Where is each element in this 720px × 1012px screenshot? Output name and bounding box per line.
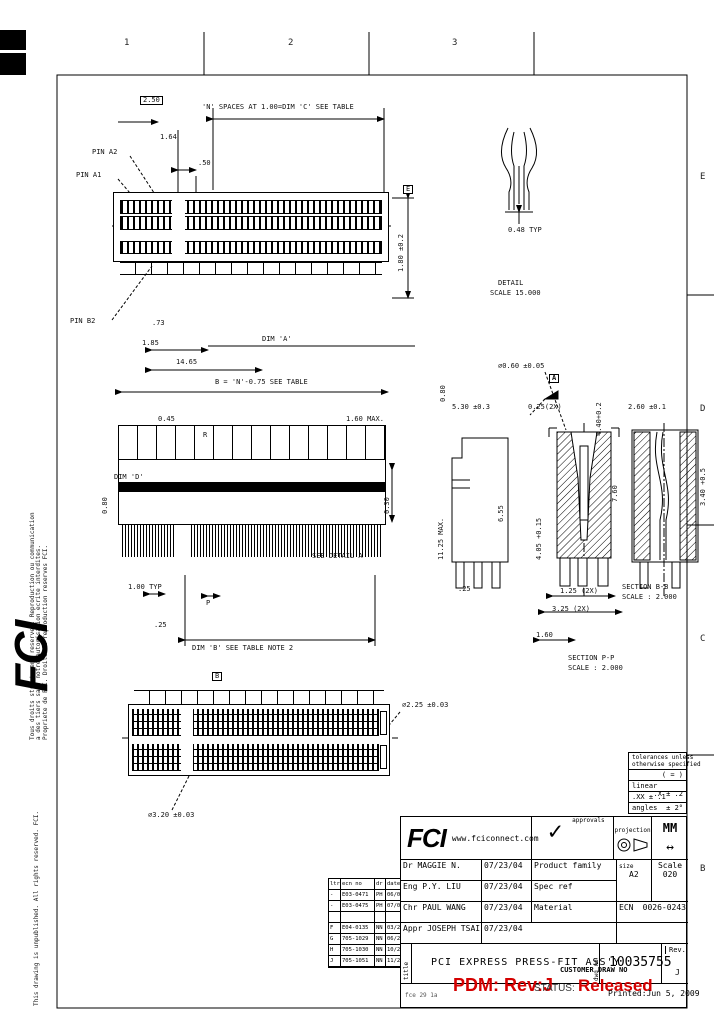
detail-title: DETAIL bbox=[498, 280, 523, 287]
dim-label: SEE DETAIL A bbox=[312, 553, 363, 560]
tolerance-text: .XX ± .1 bbox=[632, 793, 666, 801]
dim-label: 7.60 bbox=[612, 485, 619, 502]
dim-label: 4.40+0.2 bbox=[596, 402, 603, 436]
rev-cell: PH bbox=[375, 890, 386, 901]
rev-cell: J bbox=[329, 956, 341, 967]
bottom-view bbox=[128, 704, 390, 776]
rev-cell: NN bbox=[375, 956, 386, 967]
rev-cell bbox=[341, 912, 375, 923]
date-text: 07/23/04 bbox=[484, 903, 523, 912]
rev-value: J bbox=[675, 968, 680, 977]
dim-label: 4.05 +0.15 bbox=[536, 518, 543, 560]
datum-flag: E bbox=[403, 185, 413, 194]
dim-label: 3.40 +0.5 bbox=[700, 468, 707, 506]
rev-cell: NN bbox=[375, 934, 386, 945]
divider bbox=[661, 944, 662, 984]
rev-cell: - bbox=[329, 890, 341, 901]
field-cell: Product family bbox=[531, 859, 616, 880]
rev-cell: E03-0475 bbox=[341, 901, 375, 912]
printed-date: Printed:Jun 5, 2009 bbox=[608, 989, 700, 998]
field-text: Material bbox=[534, 903, 573, 912]
key-gap bbox=[181, 707, 193, 773]
sig-name: PAUL WANG bbox=[422, 903, 465, 912]
dim-label: ⌀3.20 ±0.03 bbox=[148, 812, 194, 819]
date-text: 07/23/04 bbox=[484, 861, 523, 870]
rev-header: ltr bbox=[329, 879, 341, 890]
sig-role: Chr bbox=[403, 903, 417, 912]
end-block bbox=[380, 711, 387, 735]
copyright-line: This drawing is unpublished. All rights … bbox=[33, 811, 40, 1006]
rev-cell: F bbox=[329, 923, 341, 934]
field-cell: Material bbox=[531, 901, 616, 922]
end-block bbox=[380, 745, 387, 769]
pin-callout: PIN A2 bbox=[92, 149, 117, 156]
pin-callout: PIN B2 bbox=[70, 318, 95, 325]
zone-letter: B bbox=[700, 864, 705, 874]
date-text: 07/23/04 bbox=[484, 924, 523, 933]
drawing-sheet: Tous droits strictement reserves. Reprod… bbox=[0, 0, 720, 1012]
dim-label: 2.50 bbox=[140, 96, 163, 105]
dim-label: .73 bbox=[152, 320, 165, 327]
tolerance-text: ( = ) bbox=[662, 771, 683, 779]
dim-label: R bbox=[203, 432, 207, 439]
units-cell: MM ↔ bbox=[651, 817, 688, 859]
sig-role-name: Chr PAUL WANG bbox=[401, 901, 481, 922]
section-title: SECTION P-P bbox=[568, 655, 614, 662]
dim-label: .25 bbox=[458, 586, 471, 593]
detail-dim: 0.48 TYP bbox=[508, 227, 542, 234]
dim-label: 6.55 bbox=[498, 505, 505, 522]
key-gap bbox=[176, 525, 189, 559]
dim-label: 1.60 MAX. bbox=[346, 416, 384, 423]
sig-date: 07/23/04 bbox=[481, 901, 531, 922]
dim-label: 0.80 bbox=[440, 385, 447, 402]
rev-cell bbox=[375, 912, 386, 923]
dim-label: B = 'N'-0.75 SEE TABLE bbox=[215, 379, 308, 386]
pin-field bbox=[132, 744, 379, 771]
form-note: fce 29 1a bbox=[405, 992, 438, 999]
dim-label: 0.80 bbox=[102, 497, 109, 514]
status-label: STATUS: bbox=[534, 983, 575, 994]
sig-date: 07/23/04 bbox=[481, 922, 616, 943]
dim-label: .50 bbox=[198, 160, 211, 167]
fci-logo: FCI bbox=[407, 823, 446, 854]
dim-label: .25 bbox=[154, 622, 167, 629]
dim-label: 1.80 ±0.2 bbox=[398, 234, 405, 272]
pin-callout: PIN A1 bbox=[76, 172, 101, 179]
section-title: SECTION B-B bbox=[622, 584, 668, 591]
projection-label: projection bbox=[614, 827, 650, 834]
customer-draw-no: CUSTOMER DRAW NO bbox=[560, 966, 627, 974]
rev-cell: H bbox=[329, 945, 341, 956]
date-text: 07/23/04 bbox=[484, 882, 523, 891]
tolerance-text: linear bbox=[632, 782, 657, 790]
field-text: Spec ref bbox=[534, 882, 573, 891]
field-text: Product family bbox=[534, 861, 601, 870]
sig-role: Dr bbox=[403, 861, 413, 870]
rev-cell: - bbox=[329, 901, 341, 912]
sig-name: P.Y. LIU bbox=[422, 882, 461, 891]
approvals-cell: ✓ approvals bbox=[531, 817, 613, 859]
top-view bbox=[113, 192, 389, 262]
dim-label: 0.45 bbox=[158, 416, 175, 423]
divider bbox=[411, 944, 412, 984]
dim-label: DIM 'A' bbox=[262, 336, 292, 343]
pin-row bbox=[120, 241, 382, 254]
dim-label: ⌀2.25 ±0.03 bbox=[402, 702, 448, 709]
sig-date: 07/23/04 bbox=[481, 880, 531, 901]
dim-label: 14.65 bbox=[176, 359, 197, 366]
dim-label: 3.25 (2X) bbox=[552, 606, 590, 613]
projection-cell: projection bbox=[613, 817, 651, 859]
website-text: www.fciconnect.com bbox=[452, 834, 539, 843]
zone-number: 3 bbox=[452, 38, 457, 48]
pin-row bbox=[120, 216, 382, 230]
tolerance-text: angles bbox=[632, 804, 657, 812]
ecn-cell: ECN 0026-0243 bbox=[616, 901, 688, 922]
title-label: title bbox=[403, 962, 410, 980]
dim-label: 'N' SPACES AT 1.00=DIM 'C' SEE TABLE bbox=[202, 104, 354, 111]
sig-role: Appr bbox=[403, 924, 422, 933]
housing-lower bbox=[118, 491, 386, 525]
dim-label: ⌀0.60 ±0.05 bbox=[498, 363, 544, 370]
rev-cell: 705-1030 bbox=[341, 945, 375, 956]
dim-label: 11.25 MAX. bbox=[438, 518, 445, 560]
margin-copyright-en: This drawing is unpublished. All rights … bbox=[34, 876, 40, 1006]
dim-label: P bbox=[206, 600, 210, 607]
tolerance-row: angles ± 2° bbox=[629, 803, 686, 813]
castellations bbox=[118, 425, 386, 459]
rev-header: dr bbox=[375, 879, 386, 890]
tolerance-row: ( = ) bbox=[629, 770, 686, 781]
rev-cell: PH bbox=[375, 901, 386, 912]
arrow-icon: ↔ bbox=[666, 840, 674, 855]
tolerance-text: ± 2° bbox=[666, 804, 683, 812]
zone-letter: E bbox=[700, 172, 705, 182]
fci-margin-logo: FCI bbox=[4, 621, 58, 692]
sig-name: JOSEPH TSAI bbox=[427, 924, 480, 933]
front-view bbox=[118, 425, 386, 573]
zone-number: 1 bbox=[124, 38, 129, 48]
section-scale: SCALE : 2.000 bbox=[568, 665, 623, 672]
dim-label: 2.60 ±0.1 bbox=[628, 404, 666, 411]
dim-label: 5.30 ±0.3 bbox=[452, 404, 490, 411]
tolerance-text: tolerances unless bbox=[632, 754, 693, 761]
scale-label: Scale bbox=[658, 861, 682, 870]
print-mark bbox=[0, 53, 26, 75]
ecn-label: ECN bbox=[619, 903, 633, 912]
scale-cell: Scale 020 bbox=[651, 859, 688, 901]
housing-upper bbox=[118, 459, 386, 483]
pin-row bbox=[120, 200, 382, 214]
rev-cell: 705-1051 bbox=[341, 956, 375, 967]
ecn-value: 0026-0243 bbox=[643, 903, 686, 912]
dim-label: DIM 'B' SEE TABLE NOTE 2 bbox=[192, 645, 293, 652]
mounting-tabs bbox=[120, 262, 382, 275]
detail-flag: A bbox=[549, 374, 559, 383]
size-value: A2 bbox=[629, 870, 639, 879]
rev-cell: 705-1029 bbox=[341, 934, 375, 945]
section-flag: B bbox=[212, 672, 222, 681]
sig-date: 07/23/04 bbox=[481, 859, 531, 880]
rev-cell bbox=[329, 912, 341, 923]
dim-label: 0.25(2X) bbox=[528, 404, 562, 411]
size-label: size bbox=[619, 863, 633, 870]
rev-cell: E03-0471 bbox=[341, 890, 375, 901]
dim-label: 1.64 bbox=[160, 134, 177, 141]
scale-value: 020 bbox=[663, 870, 677, 879]
rev-label: Rev. bbox=[665, 946, 686, 954]
sig-role-name: Eng P.Y. LIU bbox=[401, 880, 481, 901]
rev-cell: E04-0135 bbox=[341, 923, 375, 934]
spare-cell bbox=[616, 922, 688, 943]
dim-label: 1.85 bbox=[142, 340, 159, 347]
section-scale: SCALE : 2.000 bbox=[622, 594, 677, 601]
tolerance-block: tolerances unless otherwise specified ( … bbox=[628, 752, 687, 814]
field-cell: Spec ref bbox=[531, 880, 616, 901]
rev-cell: G bbox=[329, 934, 341, 945]
zone-letter: D bbox=[700, 404, 705, 414]
logo-cell: FCI www.fciconnect.com bbox=[401, 817, 531, 859]
dim-label: 1.25 (2X) bbox=[560, 588, 598, 595]
card-slot bbox=[118, 483, 386, 491]
dim-label: DIM 'D' bbox=[114, 474, 144, 481]
key-gap bbox=[172, 197, 185, 257]
detail-scale: SCALE 15.000 bbox=[490, 290, 541, 297]
print-mark bbox=[0, 30, 26, 50]
dim-label: 1.60 bbox=[536, 632, 553, 639]
rev-cell: NN bbox=[375, 923, 386, 934]
units-label: MM bbox=[663, 821, 677, 835]
pin-field bbox=[132, 709, 379, 736]
tolerance-row: linear .X ± .2 bbox=[629, 781, 686, 792]
rev-header: ecn no bbox=[341, 879, 375, 890]
sig-name: MAGGIE N. bbox=[417, 861, 460, 870]
size-cell: size A2 bbox=[616, 859, 651, 901]
bottom-tabs bbox=[134, 690, 384, 705]
sig-role: Eng bbox=[403, 882, 417, 891]
tolerance-header: tolerances unless otherwise specified bbox=[629, 753, 686, 770]
sig-role-name: Dr MAGGIE N. bbox=[401, 859, 481, 880]
third-angle-projection-icon bbox=[616, 836, 650, 854]
dim-label: 0.30 bbox=[384, 497, 391, 514]
rev-cell: NN bbox=[375, 945, 386, 956]
tolerance-text: otherwise specified bbox=[632, 761, 701, 768]
zone-letter: C bbox=[700, 634, 705, 644]
zone-number: 2 bbox=[288, 38, 293, 48]
approvals-label: approvals bbox=[572, 817, 605, 824]
check-icon: ✓ bbox=[548, 817, 562, 845]
dim-label: 1.00 TYP bbox=[128, 584, 162, 591]
sig-role-name: Appr JOSEPH TSAI bbox=[401, 922, 481, 943]
